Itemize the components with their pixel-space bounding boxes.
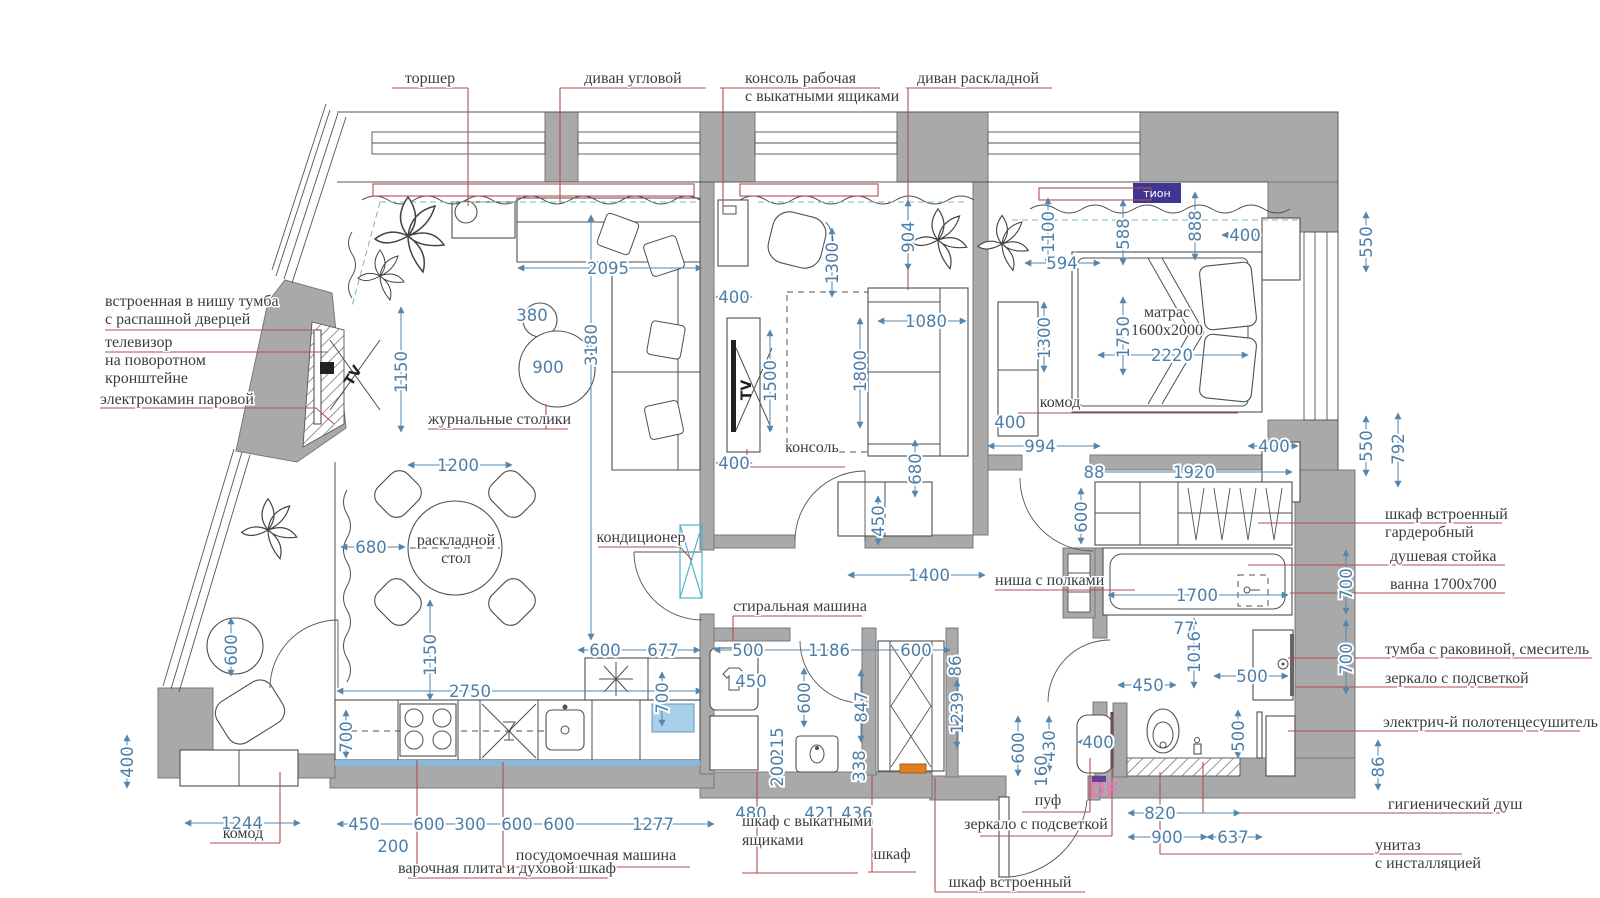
dim-57: 994 [1024, 437, 1056, 456]
desk-chair [765, 208, 830, 272]
hygienic-shower [1194, 738, 1201, 755]
laundry-cabinet [710, 716, 758, 770]
dim-72: 86 [1369, 757, 1388, 778]
dim-4: 1150 [392, 351, 411, 393]
dim-10: 600 [222, 634, 241, 666]
wardrobe-built-in [1095, 482, 1292, 545]
tion-badge-label: тион [1143, 187, 1170, 200]
plant [375, 197, 444, 272]
dim-0: 2095 [587, 259, 629, 278]
dim-77: 820 [1144, 804, 1176, 823]
dim-53: 1300 [1035, 317, 1054, 359]
label-16: матрас [1144, 304, 1190, 321]
diagonal-glazing-upper [272, 104, 346, 283]
dim-1: 380 [516, 306, 548, 325]
dim-7: 1150 [421, 634, 440, 676]
hall-closets [878, 641, 1113, 877]
label-5: встроенная в нишу тумба [105, 293, 279, 310]
dim-75: 160 [1032, 755, 1051, 787]
dim-28: 1800 [851, 350, 870, 392]
dim-66: 700 [1337, 568, 1356, 600]
label-29: зеркало с подсветкой [964, 816, 1108, 833]
label-18: комод [1040, 394, 1080, 411]
towel-niche [1266, 716, 1295, 776]
label-20: стиральная машина [733, 598, 867, 615]
dim-42: 86 [946, 656, 965, 677]
label-9: кронштейне [105, 370, 188, 387]
label-4: диван раскладной [917, 70, 1039, 87]
dim-29: 1080 [905, 312, 947, 331]
mirror [1290, 634, 1294, 696]
dim-60: 792 [1389, 433, 1408, 465]
label-12: раскладной [417, 532, 496, 549]
dim-36: 450 [735, 672, 767, 691]
label-25: ящиками [742, 832, 804, 849]
dim-48: 594 [1046, 254, 1078, 273]
label-27: шкаф встроенный [949, 874, 1072, 891]
dim-23: 400 [718, 288, 750, 307]
kitchen-sink [546, 705, 584, 751]
dim-71: 500 [1229, 720, 1248, 752]
label-24: шкаф с выкатными [742, 813, 872, 830]
dim-13: 450 [348, 815, 380, 834]
dim-6: 680 [355, 538, 387, 557]
dim-39: 215 [768, 727, 787, 759]
label-26: шкаф [873, 846, 910, 863]
dim-61: 88 [1084, 463, 1105, 482]
dim-21: 677 [647, 641, 679, 660]
dim-68: 700 [1337, 643, 1356, 675]
label-6: с распашной дверцей [105, 311, 251, 328]
label-33: ванна 1700x700 [1390, 576, 1497, 593]
label-35: зеркало с подсветкой [1385, 670, 1529, 687]
dim-5: 1200 [437, 456, 479, 475]
dim-62: 1920 [1173, 463, 1215, 482]
balcony-chair [210, 675, 290, 750]
dim-73: 600 [1009, 732, 1028, 764]
door-df-label: DF [1089, 778, 1119, 802]
dim-41: 338 [850, 750, 869, 782]
label-30: шкаф встроенный [1385, 506, 1508, 523]
label-14: кондиционер [596, 529, 685, 546]
dim-70: 450 [1132, 676, 1164, 695]
dim-58: 400 [1258, 437, 1290, 456]
dim-17: 600 [501, 815, 533, 834]
label-1: диван угловой [584, 70, 682, 87]
closet [878, 641, 944, 771]
towel-rail [1257, 712, 1262, 758]
label-0: торшер [405, 70, 455, 87]
toilet [1147, 709, 1179, 753]
curtain-rod [740, 184, 878, 196]
dim-40: 200 [768, 755, 787, 787]
label-7: телевизор [105, 334, 173, 351]
label-19: ниша с полками [995, 572, 1105, 589]
dim-30: 680 [906, 453, 925, 485]
cooktop [400, 704, 456, 756]
dim-51: 400 [1229, 226, 1261, 245]
dim-49: 588 [1114, 218, 1133, 250]
label-34: тумба с раковиной, смеситель [1385, 641, 1589, 658]
label-3: с выкатными ящиками [745, 88, 900, 105]
dim-79: 637 [1217, 828, 1249, 847]
dim-15: 600 [413, 815, 445, 834]
tv-bracket [320, 362, 334, 374]
label-2: консоль рабочая [745, 70, 857, 87]
label-10: электрокамин паровой [100, 391, 254, 408]
label-41: TV [739, 380, 755, 401]
dim-50: 888 [1186, 210, 1205, 242]
label-17: 1600x2000 [1131, 322, 1203, 339]
label-21: комод [223, 825, 263, 842]
dim-26: 904 [899, 221, 918, 253]
dim-16: 300 [454, 815, 486, 834]
dim-56: 400 [994, 413, 1026, 432]
dim-3: 3180 [582, 324, 601, 366]
dim-31: 450 [869, 505, 888, 537]
dim-2: 900 [532, 358, 564, 377]
small-basin [796, 736, 838, 772]
dim-78: 900 [1151, 828, 1183, 847]
label-28: пуф [1035, 792, 1062, 809]
dim-43: 1239 [948, 692, 967, 734]
dim-47: 1100 [1039, 211, 1058, 253]
dim-19: 1277 [632, 815, 674, 834]
dim-8: 2750 [449, 682, 491, 701]
toilet-installation-hatch [1127, 758, 1240, 776]
label-37: гигиенический душ [1388, 796, 1523, 813]
dim-24: 400 [718, 454, 750, 473]
dim-63: 600 [1072, 501, 1091, 533]
dim-22: 700 [653, 682, 672, 714]
dim-52: 550 [1357, 226, 1376, 258]
label-36: электрич-й полотенцесушитель [1383, 714, 1598, 731]
label-31: гардеробный [1385, 524, 1474, 541]
pillow [1199, 333, 1257, 402]
floor-plan-drawing: 2095380900318011501200680115027507006004… [0, 0, 1600, 898]
orange-threshold [900, 764, 926, 773]
label-13: стол [441, 550, 471, 567]
label-11: журнальные столики [427, 411, 572, 428]
dim-67: 1016 [1185, 631, 1204, 673]
floor-plan-page: 2095380900318011501200680115027507006004… [0, 0, 1600, 898]
dim-69: 500 [1236, 667, 1268, 686]
wall-shelf-top [1262, 218, 1300, 280]
work-room [718, 200, 968, 536]
dim-76: 400 [1082, 733, 1114, 752]
plant [358, 250, 404, 300]
dim-14: 200 [377, 837, 409, 856]
label-39: с инсталляцией [1375, 855, 1481, 872]
pillow [1199, 261, 1257, 330]
kitchen [335, 658, 700, 766]
label-32: душевая стойка [1390, 548, 1496, 565]
dim-55: 2220 [1151, 346, 1193, 365]
dim-25: 1300 [823, 242, 842, 284]
backsplash-strip [335, 760, 700, 766]
dim-59: 550 [1357, 430, 1376, 462]
label-8: на поворотном [105, 352, 206, 369]
dim-20: 600 [589, 641, 621, 660]
dim-34: 1186 [808, 641, 850, 660]
dim-11: 400 [118, 746, 137, 778]
dim-35: 600 [900, 641, 932, 660]
label-38: унитаз [1375, 837, 1421, 854]
dim-37: 600 [795, 682, 814, 714]
entry-door-leaf [999, 797, 1009, 877]
floor-lamp [455, 201, 477, 223]
dim-18: 600 [543, 815, 575, 834]
dim-64: 1700 [1176, 586, 1218, 605]
vanity [1253, 630, 1293, 700]
dim-32: 1400 [908, 566, 950, 585]
dim-33: 500 [732, 641, 764, 660]
dim-27: 1500 [761, 360, 780, 402]
label-23: посудомоечная машина [516, 847, 676, 864]
dim-9: 700 [337, 721, 356, 753]
label-15: консоль [785, 439, 839, 456]
dim-38: 847 [852, 691, 871, 723]
curtain-rod [373, 184, 694, 196]
